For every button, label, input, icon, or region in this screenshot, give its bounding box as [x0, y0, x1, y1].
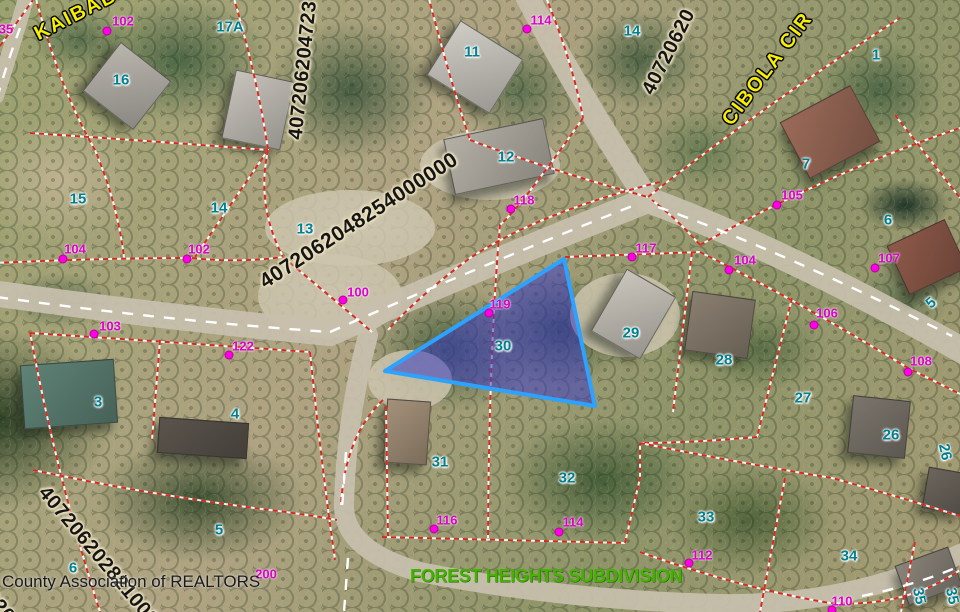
address-marker-dot: [430, 525, 439, 534]
address-marker-dot: [485, 309, 494, 318]
address-marker-dot: [628, 253, 637, 262]
watermark-text: County Association of REALTORS: [2, 572, 260, 592]
address-label: 108: [910, 354, 932, 369]
address-marker-dot: [90, 330, 99, 339]
address-label: 104: [64, 242, 86, 257]
parcel-id-label: 40720620: [638, 5, 701, 98]
lot-number: 27: [795, 390, 812, 407]
street-name-label: KAIBAB: [31, 0, 121, 46]
lot-number: 26: [935, 442, 955, 462]
address-marker-dot: [871, 264, 880, 273]
address-label: 105: [781, 188, 803, 203]
address-label: 119: [490, 297, 511, 312]
lot-number: 33: [698, 509, 715, 526]
address-marker-dot: [225, 351, 234, 360]
address-marker-dot: [523, 25, 532, 34]
address-marker-dot: [59, 255, 68, 264]
lot-number: 4: [231, 406, 239, 423]
address-marker-dot: [725, 266, 734, 275]
lot-number: 35: [942, 586, 960, 606]
lot-number: 14: [624, 23, 641, 40]
address-label: 116: [437, 513, 458, 528]
lot-number: 3: [94, 394, 102, 411]
address-label: 122: [232, 339, 254, 354]
address-label: 102: [188, 242, 210, 257]
address-label: 35: [0, 22, 13, 37]
lot-number: 34: [841, 548, 858, 565]
lot-number: 1: [872, 47, 880, 64]
address-marker-dot: [183, 255, 192, 264]
parcel-id-label: 4072062048254000000: [255, 148, 462, 294]
lot-number: 29: [623, 325, 640, 342]
lot-number: 5: [922, 294, 939, 312]
lot-number: 13: [297, 221, 314, 238]
aerial-parcel-map[interactable]: 17A1611121417651514132928272626303431323…: [0, 0, 960, 612]
lot-number: 16: [113, 72, 130, 89]
lot-number: 5: [215, 522, 223, 539]
lot-number: 12: [498, 149, 515, 166]
parcel-id-label: 407206202821000: [33, 482, 163, 612]
street-name-label: CIBOLA CIR: [718, 8, 818, 130]
subdivision-label: FOREST HEIGHTS SUBDIVISION: [410, 566, 682, 587]
label-layer: 17A1611121417651514132928272626303431323…: [0, 0, 960, 612]
address-label: 114: [563, 515, 584, 530]
lot-number: 35: [909, 586, 929, 606]
address-marker-dot: [555, 528, 564, 537]
address-marker-dot: [904, 368, 913, 377]
address-marker-dot: [810, 321, 819, 330]
lot-number: 7: [802, 156, 810, 173]
address-marker-dot: [339, 296, 348, 305]
lot-number: 15: [70, 191, 87, 208]
address-label: 112: [692, 548, 713, 563]
lot-number: 28: [716, 352, 733, 369]
address-label: 118: [514, 193, 535, 208]
lot-number: 26: [883, 427, 900, 444]
address-label: 102: [112, 14, 134, 29]
address-marker-dot: [828, 606, 837, 612]
address-label: 100: [347, 285, 369, 300]
address-marker-dot: [685, 559, 694, 568]
address-label: 103: [99, 319, 121, 334]
address-marker-dot: [773, 201, 782, 210]
address-label: 104: [734, 253, 756, 268]
lot-number: 6: [884, 212, 892, 229]
lot-number: 30: [495, 338, 512, 355]
address-label: 106: [816, 306, 838, 321]
address-label: 114: [531, 13, 552, 28]
lot-number: 11: [464, 44, 480, 61]
lot-number: 14: [211, 200, 228, 217]
address-label: 107: [878, 251, 900, 266]
address-marker-dot: [103, 27, 112, 36]
address-label: 117: [636, 241, 657, 256]
lot-number: 17A: [216, 19, 244, 36]
lot-number: 32: [559, 470, 576, 487]
parcel-id-label: 407206204723: [285, 0, 322, 141]
address-marker-dot: [507, 205, 516, 214]
lot-number: 31: [432, 454, 449, 471]
